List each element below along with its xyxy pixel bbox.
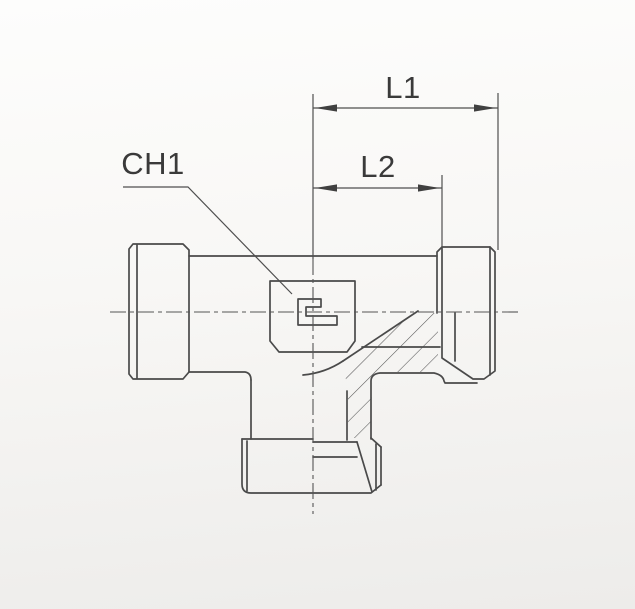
section-break-curve xyxy=(303,361,343,375)
bottom-nut-left-outline xyxy=(242,439,381,493)
ch1-leader-line xyxy=(123,187,292,294)
tube-bottom-left-edge xyxy=(189,372,251,380)
right-nut-outline xyxy=(442,247,495,379)
l1-label: L1 xyxy=(385,70,420,105)
callout-ch1: CH1 xyxy=(121,146,292,294)
l1-arrow-left xyxy=(315,104,337,111)
l2-arrow-left xyxy=(315,184,337,191)
centerlines xyxy=(110,259,521,514)
ch1-label: CH1 xyxy=(121,146,185,181)
bottom-nut-chamfer-diagonal xyxy=(357,442,372,492)
dimension-l1: L1 xyxy=(313,70,498,259)
l2-label: L2 xyxy=(360,149,395,184)
section-hatching xyxy=(343,313,438,438)
drawing-page: L1 L2 CH1 xyxy=(0,0,635,609)
part-outline xyxy=(129,244,495,493)
hatch-region xyxy=(343,313,438,438)
l1-arrow-right xyxy=(474,104,496,111)
right-arm-lower-contour xyxy=(371,373,477,439)
tee-fitting-technical-drawing: L1 L2 CH1 xyxy=(0,0,635,609)
l2-arrow-right xyxy=(418,184,440,191)
dimension-l2: L2 xyxy=(313,149,442,248)
